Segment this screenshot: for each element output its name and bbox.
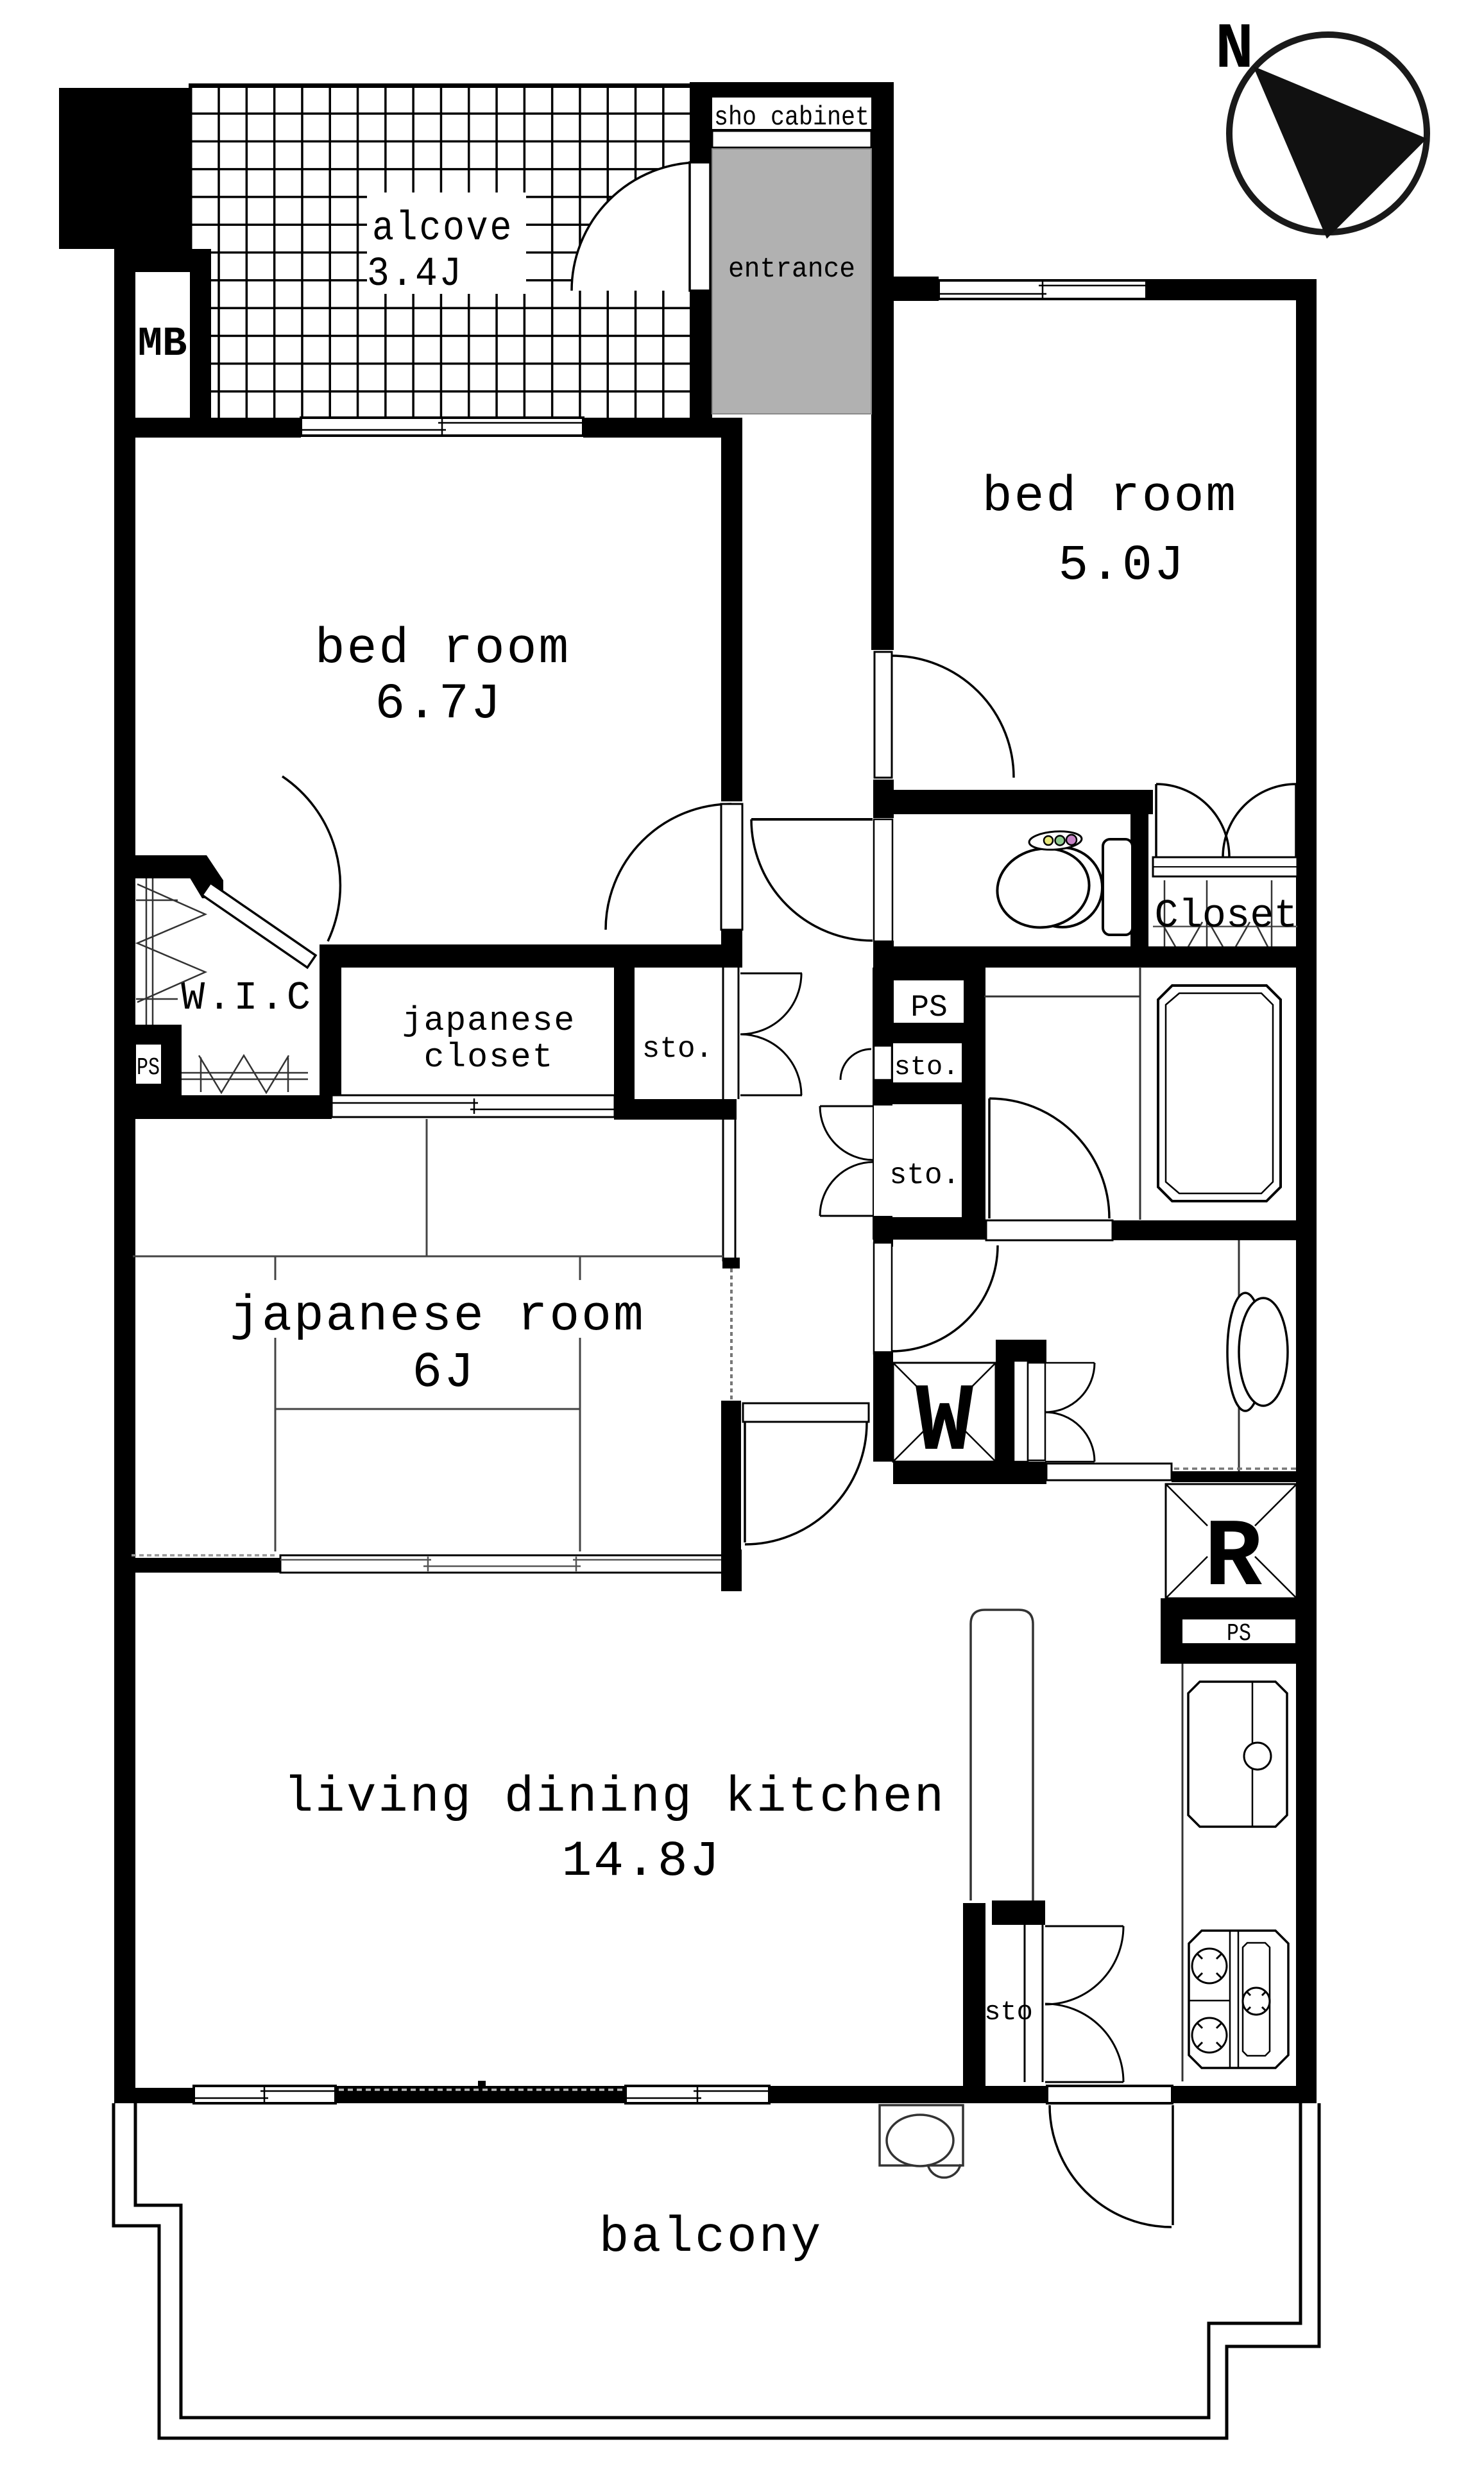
svg-text:R: R — [1204, 1505, 1262, 1614]
svg-text:PS: PS — [1227, 1620, 1251, 1648]
svg-text:6J: 6J — [412, 1345, 476, 1401]
svg-text:sto: sto — [984, 1997, 1033, 2028]
svg-text:bed room: bed room — [315, 621, 570, 678]
svg-text:3.4J: 3.4J — [367, 252, 463, 298]
svg-text:6.7J: 6.7J — [375, 676, 502, 733]
svg-text:sto.: sto. — [642, 1032, 713, 1066]
svg-text:PS: PS — [137, 1054, 160, 1082]
svg-text:balcony: balcony — [599, 2210, 823, 2266]
svg-text:W.I.C: W.I.C — [181, 975, 313, 1021]
svg-text:Closet: Closet — [1154, 893, 1297, 939]
svg-text:PS: PS — [910, 991, 948, 1025]
svg-text:entrance: entrance — [728, 253, 855, 286]
svg-text:living dining kitchen: living dining kitchen — [284, 1770, 946, 1826]
svg-text:N: N — [1215, 14, 1254, 87]
svg-text:14.8J: 14.8J — [561, 1834, 721, 1890]
svg-text:japanese: japanese — [402, 1002, 576, 1040]
svg-text:bed room: bed room — [982, 469, 1238, 525]
svg-text:5.0J: 5.0J — [1058, 538, 1186, 594]
svg-text:sho cabinet: sho cabinet — [714, 102, 869, 133]
svg-text:W: W — [916, 1369, 973, 1478]
svg-text:sto.: sto. — [894, 1052, 959, 1082]
svg-text:japanese room: japanese room — [230, 1288, 645, 1345]
svg-text:MB: MB — [138, 321, 187, 368]
svg-text:closet: closet — [424, 1038, 554, 1077]
svg-text:sto.: sto. — [889, 1159, 960, 1192]
svg-text:alcove: alcove — [372, 206, 513, 252]
